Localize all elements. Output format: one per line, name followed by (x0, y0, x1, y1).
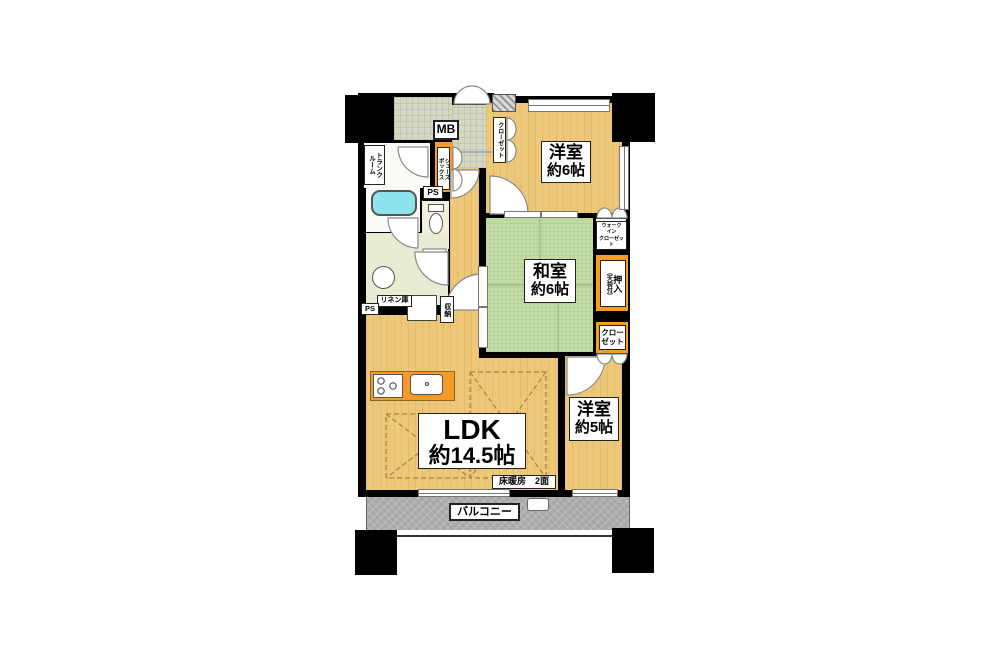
shoes-box-label: シューズ ボックス (437, 147, 450, 190)
linen-closet-label: リネン庫 (377, 295, 412, 307)
trunk-door-arc (398, 147, 428, 177)
room-size: 約14.5帖 (429, 444, 516, 468)
floor-heating-label: 床暖房 2面 (492, 475, 556, 489)
bedroom6-label: 洋室 約6帖 (541, 141, 591, 183)
storage-label: 収納 (440, 296, 454, 323)
room-size: 約5帖 (575, 420, 613, 437)
bath-door-arc (388, 218, 418, 248)
tatami-room-label: 和室 約6帖 (524, 259, 576, 303)
hall-closet-label: クローゼット (493, 117, 506, 163)
plan-linework (0, 0, 1000, 650)
front-door-arc (454, 86, 490, 104)
closet-folding-door-arc (507, 118, 516, 140)
room-name: 和室 (533, 263, 567, 282)
closet5-door-arc (612, 354, 627, 364)
door-arcs (388, 86, 627, 395)
trunk-room-label: トランク ルーム (364, 145, 385, 185)
meter-box-label: MB (433, 120, 459, 140)
closet-folding-door-arc (507, 140, 516, 162)
room-size: 約6帖 (547, 163, 585, 180)
oshiire-label: 押入 （天袋付） (600, 260, 626, 307)
bedroom5-closet-label: クロー ゼット (599, 325, 626, 350)
pillar-top-right (612, 93, 655, 142)
pipe-space-upper-label: PS (423, 186, 443, 199)
bedroom6-door-arc (490, 176, 528, 214)
ldk-label: LDK 約14.5帖 (418, 413, 526, 469)
sink-faucet (426, 383, 429, 386)
room-name: 洋室 (549, 144, 583, 163)
oshiire-text: 押入 (611, 275, 621, 293)
floor-plan: トランク ルーム MB シューズ ボックス PS クローゼット ウォーク イン … (0, 0, 1000, 650)
bedroom6-side-window (619, 146, 629, 210)
bedroom5-door-arc (567, 357, 605, 395)
balcony-label: バルコニー (449, 503, 520, 521)
tatami-sliding-door (478, 307, 488, 348)
tatami-sliding-door (478, 266, 488, 307)
pillar-bottom-right (612, 528, 654, 573)
balcony-drain-sink (527, 498, 549, 511)
pillar-bottom-left (355, 530, 397, 575)
pillar-top-left (345, 95, 393, 143)
washroom-door-arc (415, 252, 448, 285)
wic-door-arc (597, 208, 612, 218)
room-name: 洋室 (577, 401, 611, 420)
walk-in-closet-label: ウォーク イン クローゼット (596, 221, 627, 250)
bedroom6-window (528, 99, 610, 112)
room-size: 約6帖 (531, 282, 569, 299)
oshiire-note-text: （天袋付） (605, 269, 612, 299)
pipe-space-lower-label: PS (361, 303, 379, 315)
tatami-sliding-door-top (541, 211, 578, 218)
bedroom5-balcony-window (572, 489, 618, 497)
shoes-box-door-arc (453, 147, 462, 169)
tatami-sliding-door-top (504, 211, 541, 218)
bedroom5-label: 洋室 約5帖 (569, 397, 619, 441)
ldk-balcony-window (418, 489, 510, 497)
room-name: LDK (443, 415, 501, 444)
